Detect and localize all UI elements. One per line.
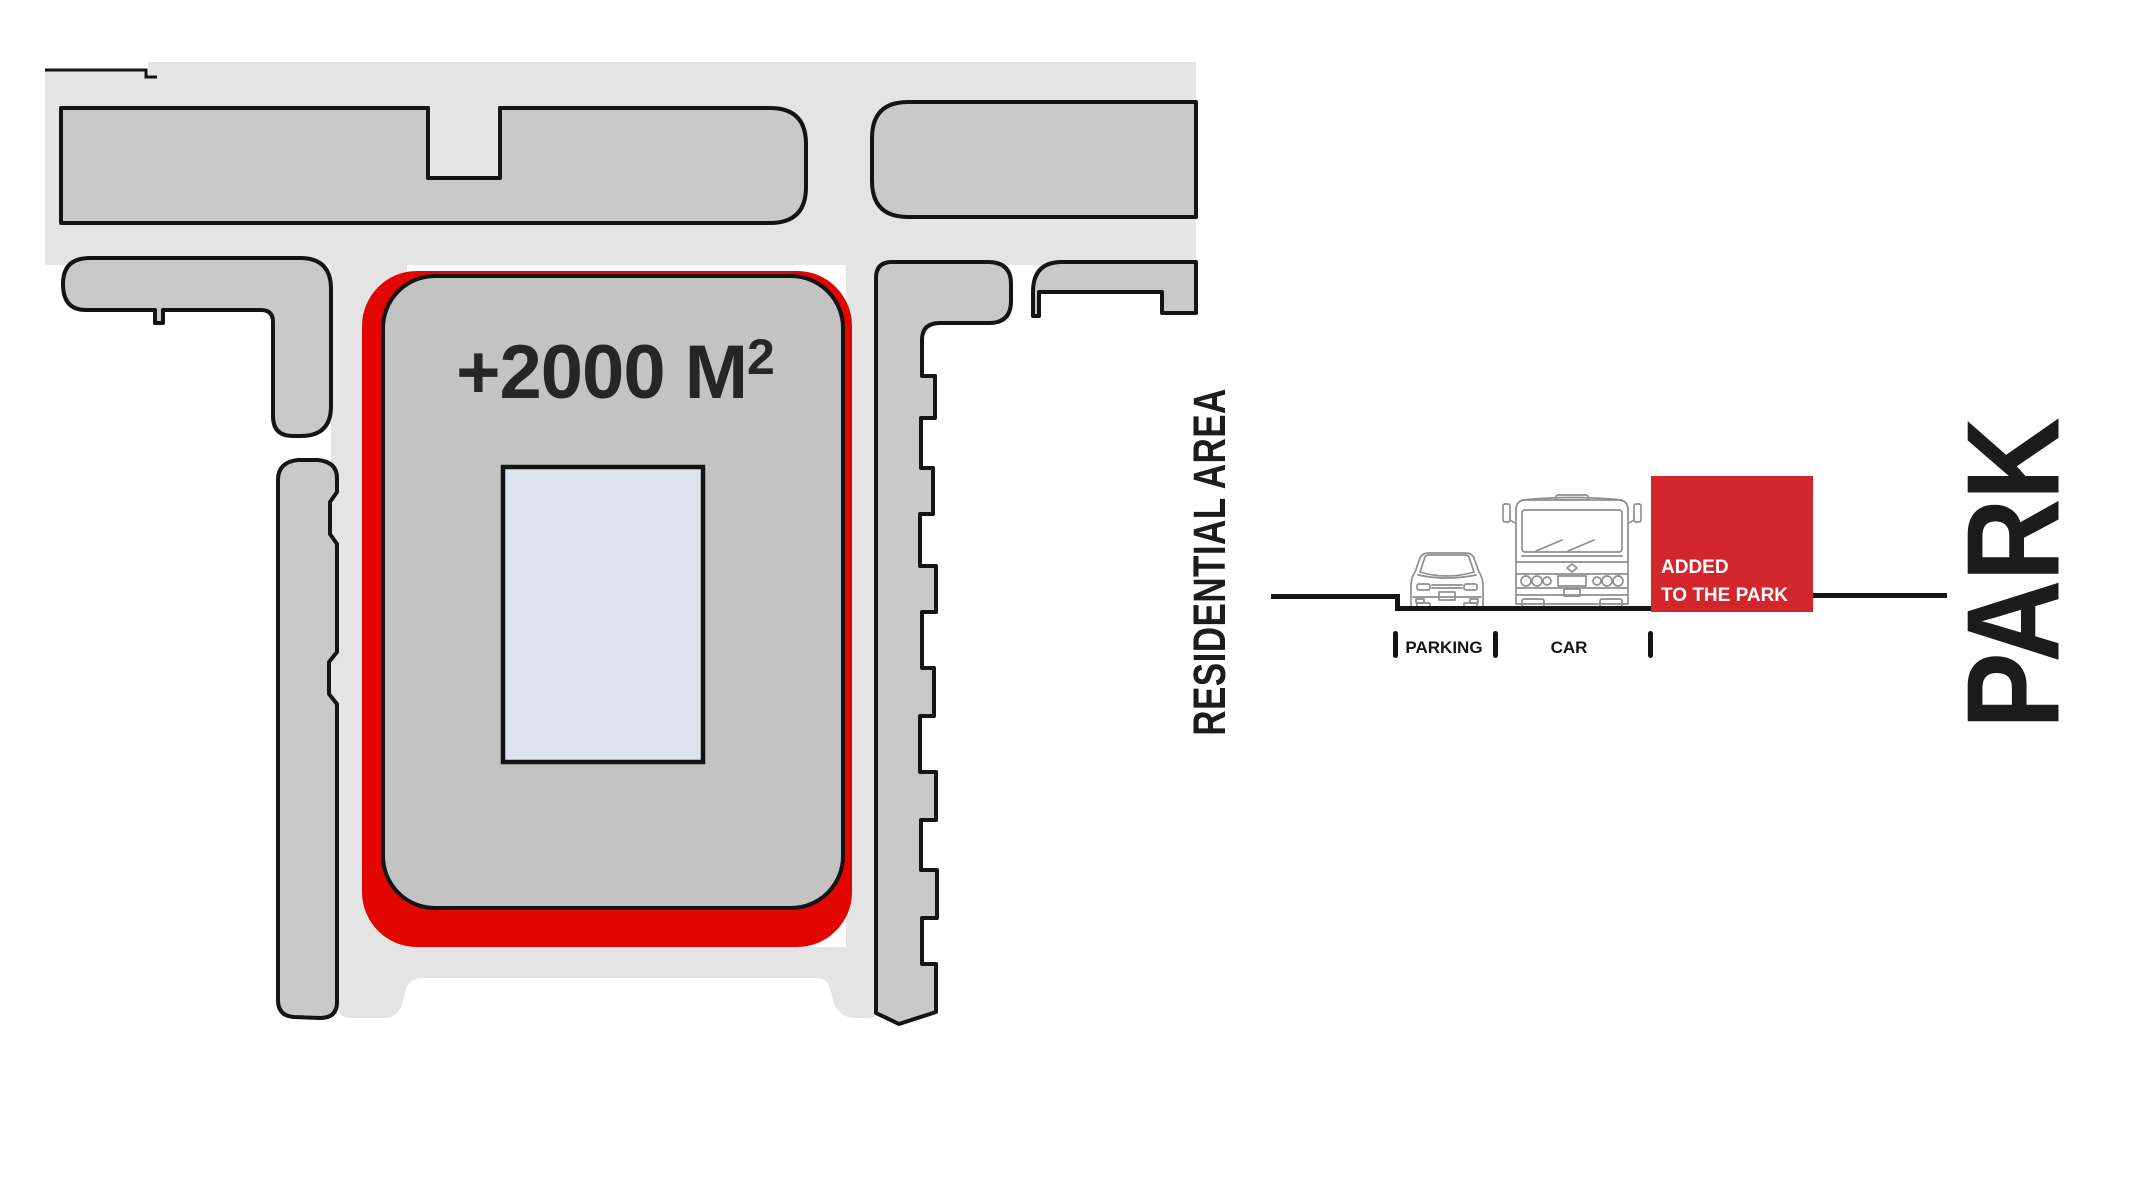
building-strip-right-jagged	[876, 262, 1011, 1024]
building-block-left-L	[63, 258, 331, 436]
park-area-superscript: 2	[747, 329, 774, 385]
building-block-right-small	[1033, 262, 1196, 316]
parking-zone-label: PARKING	[1404, 638, 1484, 658]
diagram-canvas: +2000 M2 RESIDENTIAL AREA	[0, 0, 2130, 1200]
site-plan: +2000 M2	[0, 0, 1250, 1200]
ground-line-right	[1813, 593, 1947, 598]
dimension-tick-right	[1648, 631, 1653, 658]
residential-area-label: RESIDENTIAL AREA	[1184, 388, 1236, 736]
dimension-tick-middle	[1493, 631, 1498, 658]
added-to-park-line1: ADDED	[1661, 554, 1813, 582]
park-inner-building	[503, 467, 703, 762]
building-block-top-right	[872, 102, 1196, 217]
added-to-park-line2: TO THE PARK	[1661, 582, 1813, 610]
road-bottom-band	[337, 947, 880, 1018]
ground-line-lower	[1397, 606, 1651, 611]
park-area-label: +2000 M2	[456, 329, 774, 415]
car-zone-label: CAR	[1539, 638, 1599, 658]
park-side-label: PARK	[1938, 419, 2089, 729]
car-front-icon	[1406, 550, 1488, 608]
added-to-park-box: ADDED TO THE PARK	[1651, 476, 1813, 612]
ground-line-left	[1271, 594, 1399, 599]
dimension-tick-left	[1393, 631, 1398, 658]
bus-front-icon	[1502, 494, 1642, 608]
building-strip-left	[278, 460, 337, 1018]
